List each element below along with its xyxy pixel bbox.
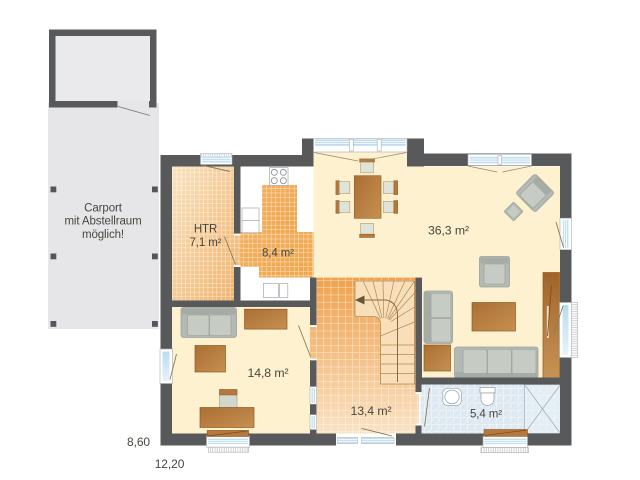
svg-text:5,4 m²: 5,4 m² xyxy=(470,409,502,421)
svg-text:7,1 m²: 7,1 m² xyxy=(190,237,222,249)
svg-text:mit Abstellraum: mit Abstellraum xyxy=(64,216,141,228)
svg-text:8,60: 8,60 xyxy=(127,435,150,449)
svg-text:12,20: 12,20 xyxy=(155,457,185,471)
svg-text:Carport: Carport xyxy=(84,202,123,214)
svg-text:möglich!: möglich! xyxy=(82,229,124,241)
svg-text:13,4 m²: 13,4 m² xyxy=(351,404,392,418)
svg-text:14,8 m²: 14,8 m² xyxy=(248,366,289,380)
svg-text:HTR: HTR xyxy=(194,224,217,236)
svg-text:36,3 m²: 36,3 m² xyxy=(428,224,469,238)
svg-text:8,4 m²: 8,4 m² xyxy=(262,248,294,260)
